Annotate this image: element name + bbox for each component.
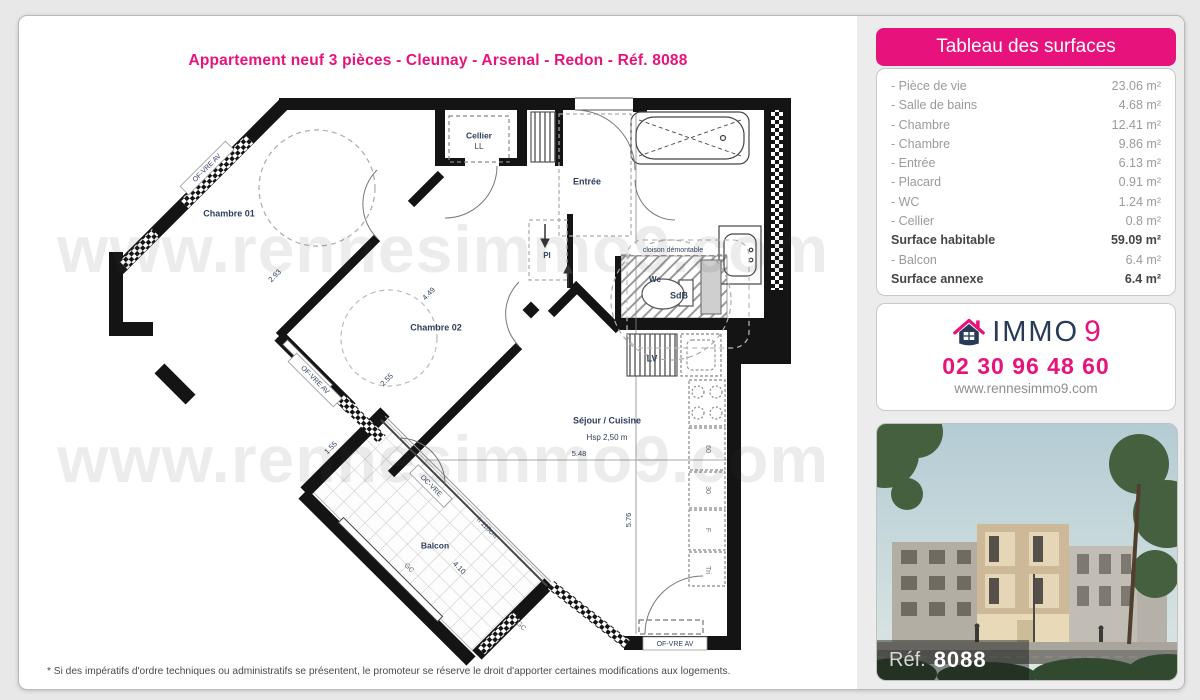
entry-opening [575, 97, 633, 111]
surfaces-header: Tableau des surfaces [876, 28, 1176, 66]
brand-name: IMMO [992, 316, 1079, 349]
plan-title: Appartement neuf 3 pièces - Cleunay - Ar… [19, 52, 857, 70]
ref-label: Réf. [889, 649, 926, 672]
building-photo: Réf. 8088 [876, 423, 1178, 681]
dim-4-49: 4.49 [420, 285, 437, 302]
surface-row: - Salle de bains4.68 m² [891, 96, 1161, 115]
dim-5-76: 5.76 [624, 513, 633, 528]
room-label-cellier-ll: LL [475, 142, 484, 151]
agency-website[interactable]: www.rennesimmo9.com [877, 381, 1175, 396]
page: Appartement neuf 3 pièces - Cleunay - Ar… [0, 0, 1200, 700]
room-label-sejour: Séjour / Cuisine [573, 415, 641, 425]
photo-ref-overlay: Réf. 8088 [877, 640, 1029, 680]
surface-row: - Chambre9.86 m² [891, 135, 1161, 154]
room-label-balcon: Balcon [421, 540, 449, 550]
kitchen-label-f: F [704, 528, 711, 532]
room-label-sdb: SdB [670, 290, 689, 300]
surface-row: - Placard0.91 m² [891, 173, 1161, 192]
room-label-pl: Pl [543, 251, 551, 260]
agency-logo: IMMO9 [877, 315, 1175, 349]
kitchen-label-30: 30 [704, 486, 711, 494]
sidebar: Tableau des surfaces - Pièce de vie23.06… [857, 16, 1184, 689]
room-label-chambre-01: Chambre 01 [203, 208, 255, 218]
window-label-of-vre-av-3: OF-VRE AV [657, 641, 694, 648]
room-label-entree: Entrée [573, 176, 601, 186]
kitchen-label-60: 60 [704, 445, 711, 453]
surface-row: - Cellier0.8 m² [891, 212, 1161, 231]
surfaces-table: - Pièce de vie23.06 m²- Salle de bains4.… [876, 68, 1176, 296]
brand-number: 9 [1084, 315, 1101, 349]
label-gc-2: GC [515, 620, 527, 632]
floorplan-card: Appartement neuf 3 pièces - Cleunay - Ar… [18, 15, 1185, 690]
dim-2-93: 2.93 [266, 267, 283, 284]
ref-number: 8088 [934, 647, 987, 673]
room-label-wc: Wc [649, 275, 662, 284]
dim-2-55: 2.55 [378, 371, 395, 388]
house-icon [951, 316, 987, 348]
floor-plan: Chambre 01Chambre 02EntréeSdBWcPlCellier… [79, 88, 839, 668]
room-label-chambre-02: Chambre 02 [410, 322, 462, 332]
surface-row: - Chambre12.41 m² [891, 116, 1161, 135]
surface-row: - WC1.24 m² [891, 193, 1161, 212]
agency-phone: 02 30 96 48 60 [877, 353, 1175, 380]
surface-row: - Entrée6.13 m² [891, 154, 1161, 173]
agency-card: IMMO9 02 30 96 48 60 www.rennesimmo9.com [876, 303, 1176, 411]
surface-row: Surface habitable59.09 m² [891, 231, 1161, 250]
surface-row: - Balcon6.4 m² [891, 251, 1161, 270]
dim-5-48: 5.48 [572, 449, 587, 458]
room-label-cellier: Cellier [466, 130, 493, 140]
fixture-label-lv: LV [647, 353, 658, 363]
surface-row: Surface annexe6.4 m² [891, 270, 1161, 289]
kitchen-label-tri: Tri [704, 566, 711, 574]
label-hauteur-plafond: Hsp 2,50 m [587, 433, 628, 442]
surface-row: - Pièce de vie23.06 m² [891, 77, 1161, 96]
label-cloison-demontable: cloison démontable [643, 247, 703, 254]
